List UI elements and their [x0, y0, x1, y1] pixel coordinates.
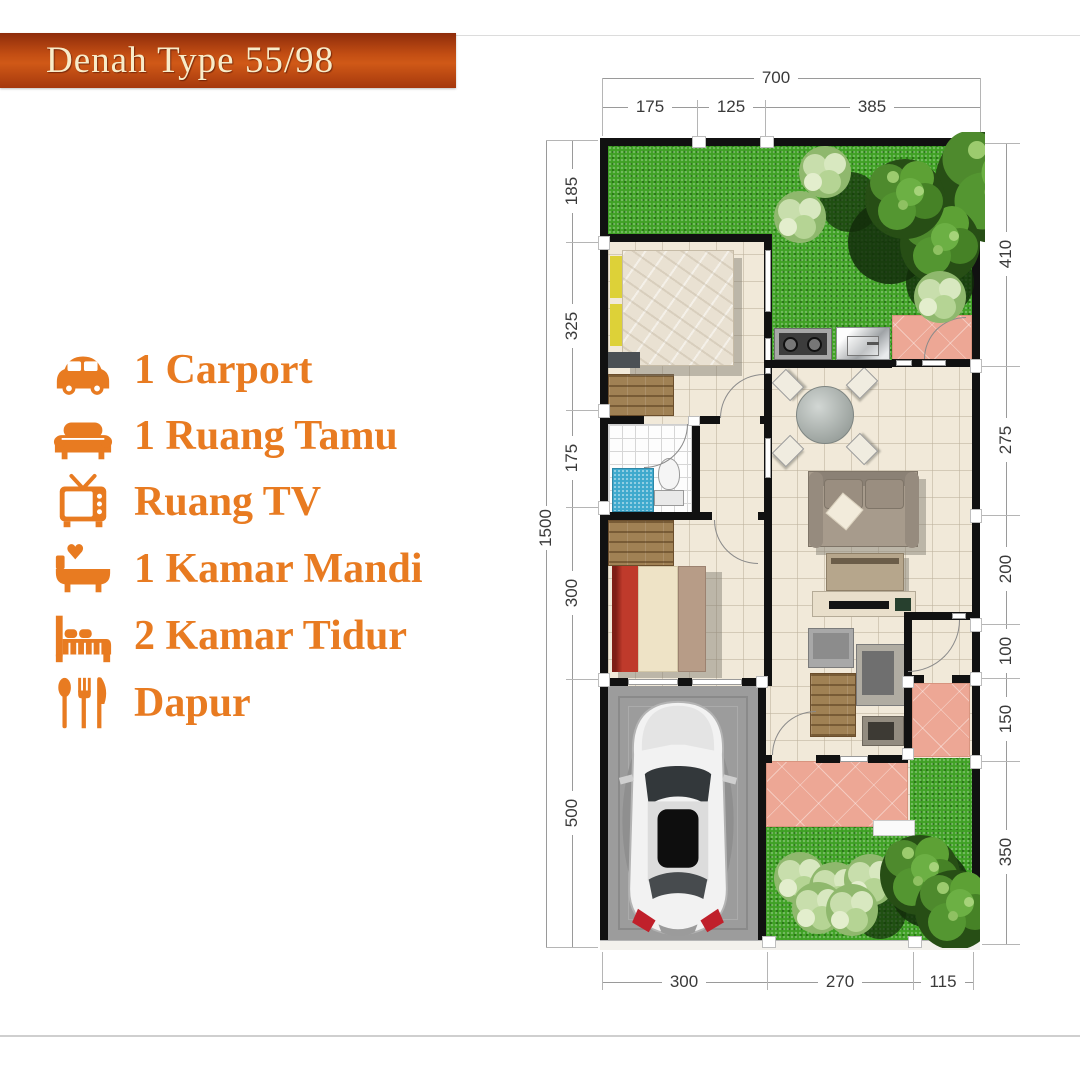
dim-connector [982, 761, 1020, 762]
legend-item-ruang-tv: Ruang TV [42, 470, 512, 536]
sofa [808, 471, 918, 547]
legend-item-carport: 1 Carport [42, 338, 512, 404]
dim-label: 410 [996, 232, 1016, 276]
dim-label: 175 [562, 436, 582, 480]
window [922, 360, 946, 366]
legend-label: 2 Kamar Tidur [134, 604, 407, 668]
stove [774, 328, 832, 360]
bed1-bench [608, 352, 640, 368]
cabinet-inner [813, 633, 849, 659]
kitchen-sink [836, 327, 890, 360]
wall [608, 416, 644, 424]
legend-item-dapur: Dapur [42, 671, 512, 737]
wall [692, 424, 700, 512]
wall-junction-marker [902, 676, 914, 688]
window [765, 338, 771, 374]
dim-label: 300 [662, 972, 706, 992]
cabinet-tall [856, 644, 908, 706]
dim-connector [566, 410, 598, 411]
wall-junction-marker [598, 673, 610, 687]
terrace-side [912, 683, 970, 757]
wall [764, 360, 892, 368]
tv-screen [829, 601, 889, 609]
dim-label: 300 [562, 571, 582, 615]
dim-connector [982, 515, 1020, 516]
legend-item-kamar-tidur: 2 Kamar Tidur [42, 604, 512, 670]
dim-connector [982, 143, 1020, 144]
legend-label: Dapur [134, 671, 251, 735]
dim-connector [980, 78, 981, 136]
wall [972, 138, 980, 940]
cabinet-inner [862, 651, 894, 695]
garden-back [608, 146, 972, 242]
terrace-step [873, 820, 915, 836]
floor-plan [600, 138, 980, 950]
dim-label: 1500 [536, 506, 556, 550]
wall-junction-marker [688, 416, 700, 426]
sofa-armrest [809, 472, 823, 548]
dim-label: 270 [818, 972, 862, 992]
coffee-table [826, 553, 904, 591]
dim-connector [982, 678, 1020, 679]
dim-label: 185 [562, 169, 582, 213]
coffee-table-edge [831, 558, 899, 564]
dim-label: 275 [996, 418, 1016, 462]
garden-side [910, 758, 972, 830]
dim-label: 150 [996, 697, 1016, 741]
wall [678, 678, 692, 686]
wall-junction-marker [756, 676, 768, 688]
desk-wood [810, 673, 856, 737]
carport-floor [608, 686, 758, 940]
bed-2-runner [678, 566, 706, 672]
cabinet [808, 628, 854, 668]
wall-junction-marker [902, 748, 914, 760]
wall-junction-marker [760, 136, 774, 148]
wall [764, 520, 772, 678]
wall [600, 138, 980, 146]
dim-label: 100 [996, 629, 1016, 673]
wall-junction-marker [692, 136, 706, 148]
dim-connector [602, 78, 603, 136]
bed-2-blanket [638, 566, 678, 672]
bottom-rule [0, 1035, 1080, 1037]
dining-table [796, 386, 854, 444]
title-banner: Denah Type 55/98 [0, 33, 456, 88]
sink-faucet [867, 342, 879, 345]
dim-connector [982, 366, 1020, 367]
window [840, 756, 868, 762]
window [765, 438, 771, 478]
tv-icon [50, 472, 116, 534]
wall [608, 512, 712, 520]
wardrobe-bedroom1 [608, 374, 674, 416]
wall-junction-marker [970, 755, 982, 769]
wall-junction-marker [762, 936, 776, 948]
wall [608, 234, 764, 242]
wall-junction-marker [970, 618, 982, 632]
poster: Denah Type 55/98 1 Carport 1 Ruang Tamu … [0, 0, 1080, 1080]
dim-connector [973, 952, 974, 990]
wall-junction-marker [970, 359, 982, 373]
wall [600, 138, 608, 940]
bench-inner [868, 722, 894, 740]
page-title: Denah Type 55/98 [0, 33, 456, 88]
dim-label: 325 [562, 304, 582, 348]
wall-junction-marker [598, 404, 610, 418]
dim-connector [546, 140, 598, 141]
legend-item-kamar-mandi: 1 Kamar Mandi [42, 537, 512, 603]
wall [758, 686, 766, 940]
bed-1 [622, 250, 734, 366]
tv-accessory [895, 598, 911, 611]
dim-connector [767, 952, 768, 990]
sink-basin [847, 336, 879, 356]
wall-junction-marker [970, 509, 982, 523]
dim-label: 700 [754, 68, 798, 88]
dim-label: 350 [996, 830, 1016, 874]
legend-label: 1 Carport [134, 338, 312, 402]
window [692, 679, 742, 685]
bed1-pillow [610, 256, 622, 298]
dim-connector [546, 947, 598, 948]
window [628, 679, 678, 685]
legend-item-ruang-tamu: 1 Ruang Tamu [42, 404, 512, 470]
dim-line-bottom-segments [602, 982, 973, 983]
dim-label: 200 [996, 547, 1016, 591]
wall-junction-marker [970, 672, 982, 686]
stove-burner [783, 337, 798, 352]
dim-label: 115 [921, 972, 965, 992]
cutlery-icon [50, 673, 116, 735]
tv-console [812, 591, 916, 617]
dim-connector [913, 952, 914, 990]
wall-junction-marker [908, 936, 922, 948]
legend-label: Ruang TV [134, 470, 321, 534]
carport-border-inner2 [628, 706, 738, 920]
terrace-front [766, 761, 908, 827]
dim-connector [602, 952, 603, 990]
wall [952, 675, 972, 683]
window [896, 360, 912, 366]
garden-front [766, 827, 972, 940]
wall [764, 755, 772, 763]
bathtub-icon [50, 539, 116, 601]
dim-connector [982, 624, 1020, 625]
dim-label: 125 [709, 97, 753, 117]
wall [608, 678, 628, 686]
legend-label: 1 Ruang Tamu [134, 404, 398, 468]
wall [816, 755, 840, 763]
legend-label: 1 Kamar Mandi [134, 537, 423, 601]
dim-connector [765, 100, 766, 136]
dim-connector [697, 100, 698, 136]
bath-mat [612, 468, 654, 512]
wardrobe-bedroom2 [608, 520, 674, 566]
bed1-pillow [610, 304, 622, 346]
dim-label: 175 [628, 97, 672, 117]
wall-junction-marker [598, 501, 610, 515]
car-icon [50, 340, 116, 402]
bed-2-headboard [612, 566, 638, 672]
stove-burner [807, 337, 822, 352]
sofa-armrest [905, 472, 919, 548]
bench-seat [862, 716, 904, 746]
window [765, 250, 771, 312]
window [952, 613, 966, 619]
sofa-icon [50, 406, 116, 468]
wall-junction-marker [598, 236, 610, 250]
bed-icon [50, 606, 116, 668]
dim-connector [566, 242, 598, 243]
dim-connector [566, 679, 598, 680]
dim-label: 500 [562, 791, 582, 835]
dim-connector [566, 507, 598, 508]
toilet-tank [654, 490, 684, 506]
sidewalk-strip [600, 940, 980, 950]
dim-connector [982, 944, 1020, 945]
dim-label: 385 [850, 97, 894, 117]
sofa-cushion [865, 479, 904, 509]
